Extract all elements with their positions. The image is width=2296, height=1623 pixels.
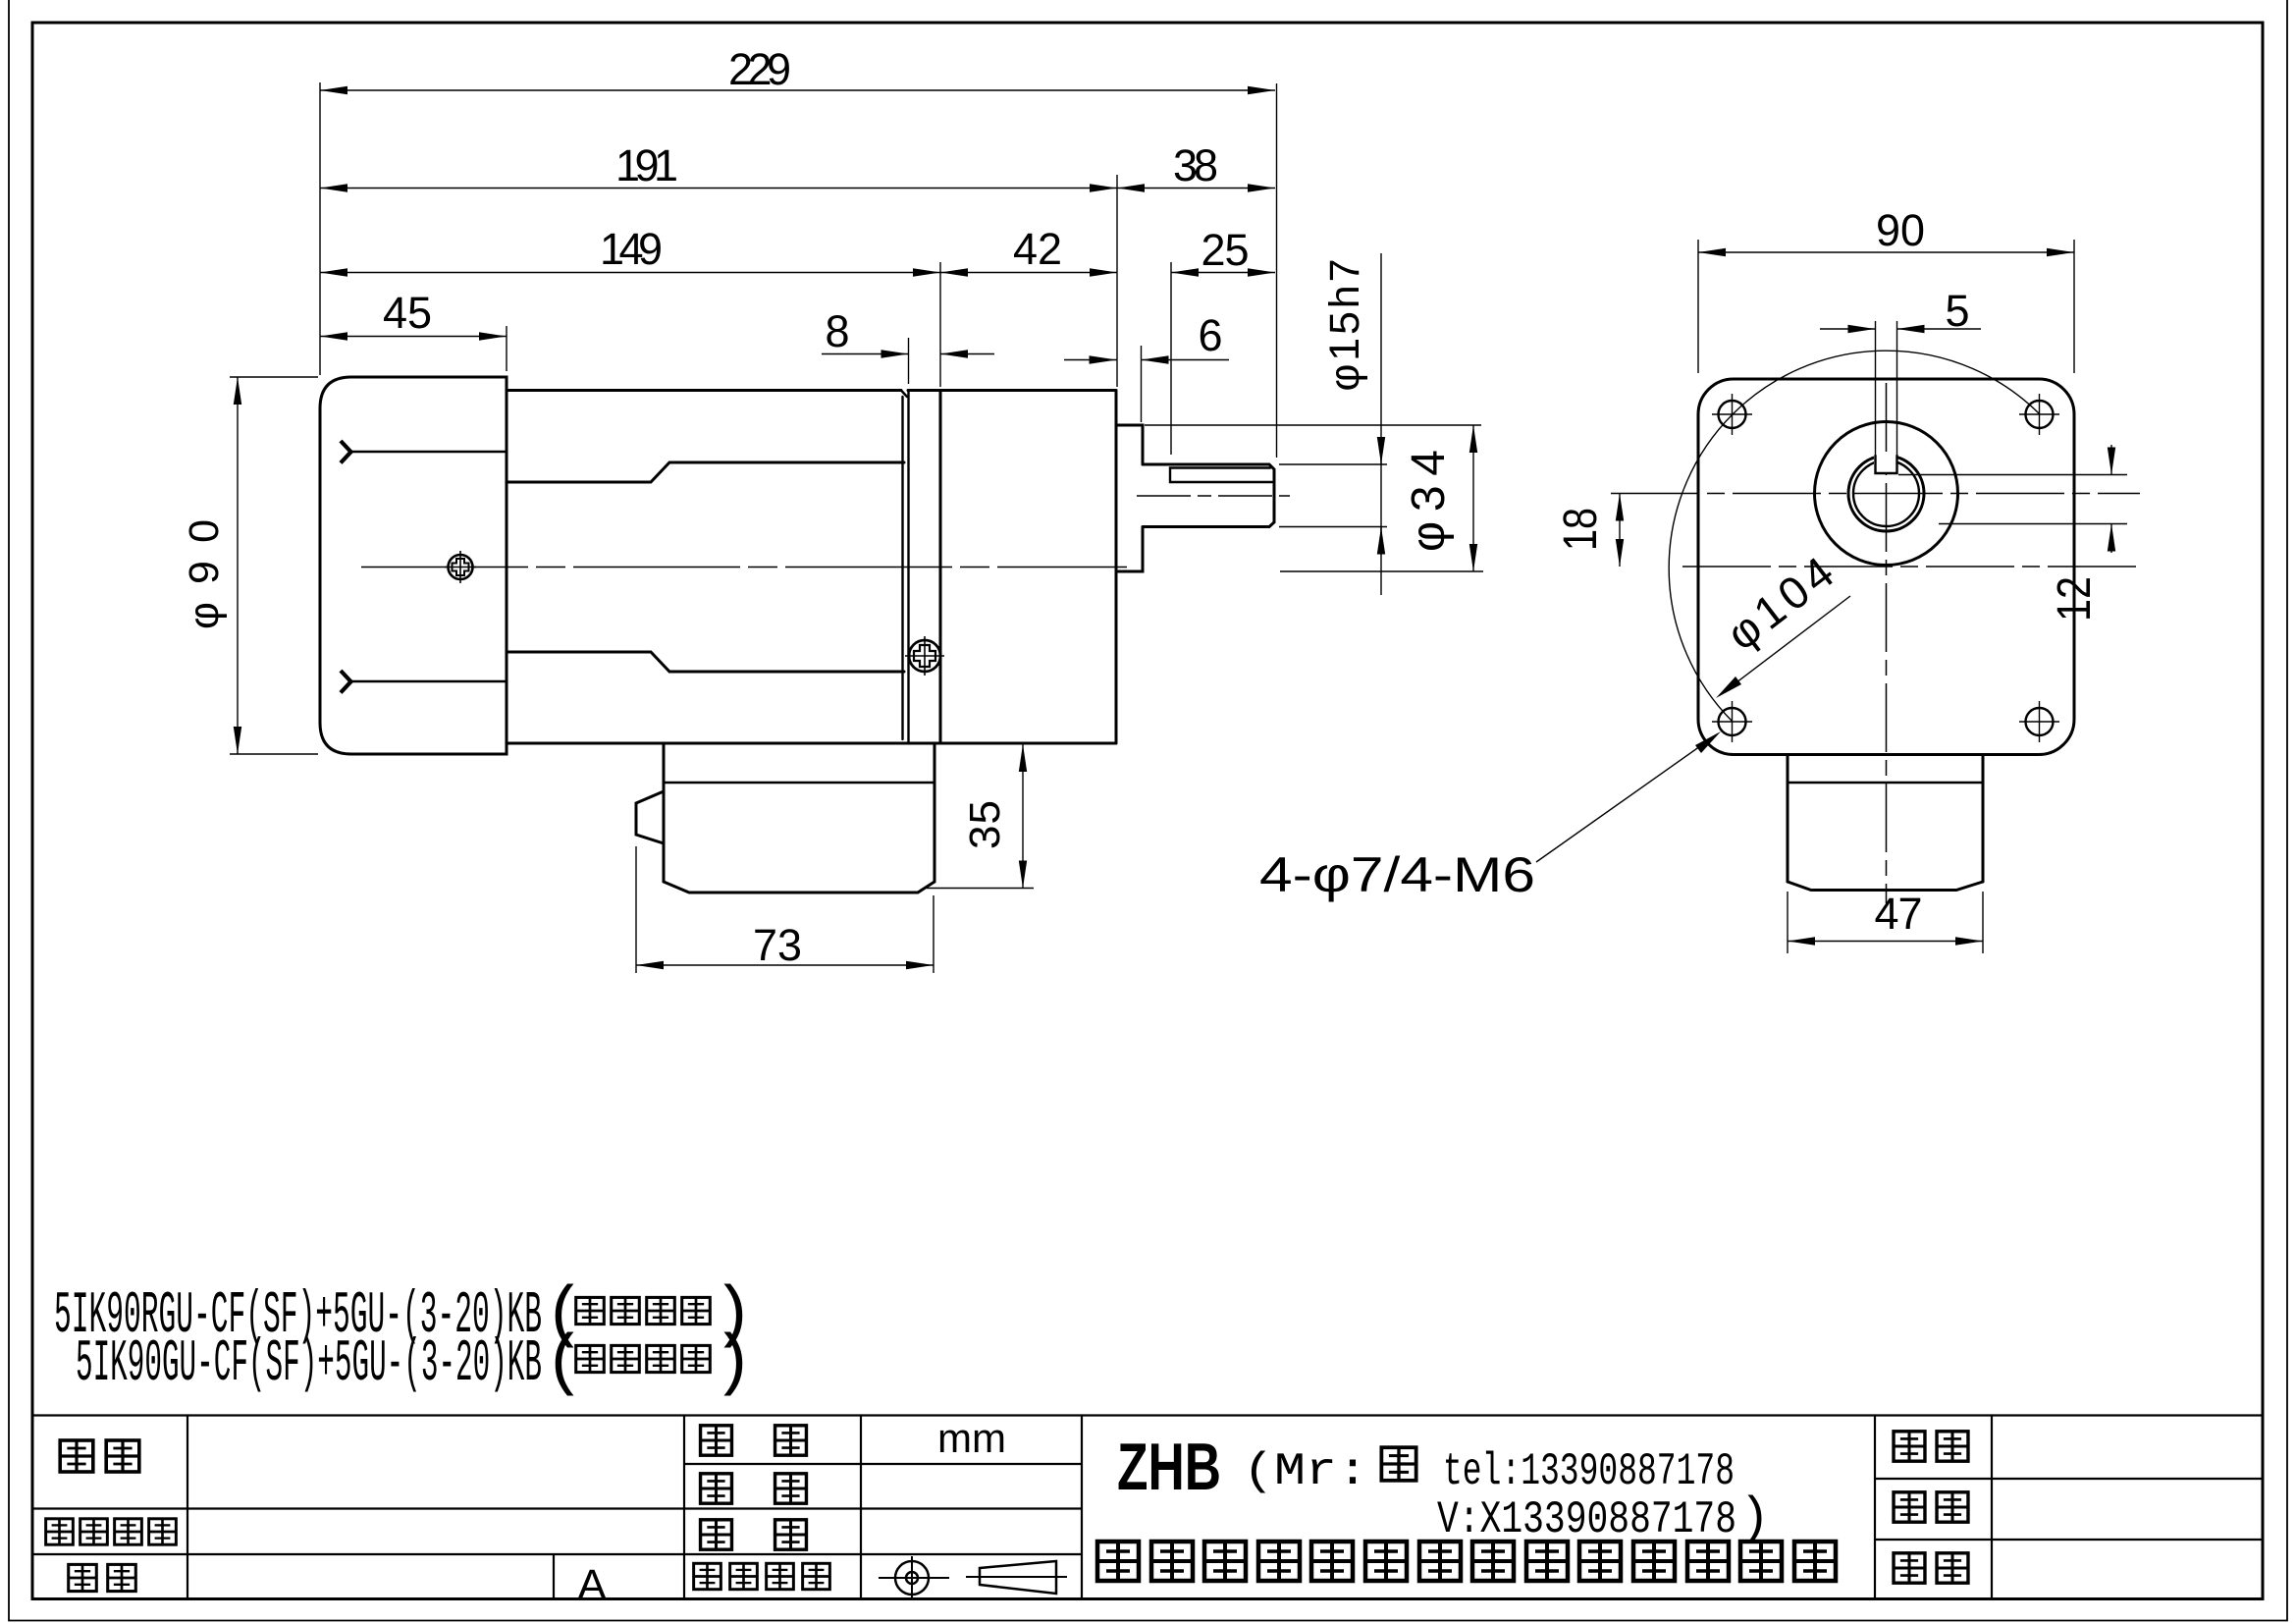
svg-text:φ34: φ34	[1403, 450, 1455, 552]
svg-text:12: 12	[2049, 576, 2101, 622]
svg-text:φ15h7: φ15h7	[1321, 259, 1368, 392]
svg-text:42: 42	[1013, 224, 1062, 274]
svg-text:229: 229	[728, 44, 791, 94]
svg-text:149: 149	[600, 224, 663, 274]
svg-text:18: 18	[1555, 508, 1607, 551]
svg-text:): )	[1739, 1489, 1770, 1547]
svg-text:47: 47	[1875, 889, 1923, 939]
svg-text:mm: mm	[937, 1415, 1006, 1461]
svg-text:): )	[713, 1325, 754, 1403]
svg-text:tel:13390887178: tel:13390887178	[1443, 1446, 1735, 1497]
svg-text:ZHB: ZHB	[1117, 1430, 1221, 1504]
svg-text:6: 6	[1198, 310, 1222, 360]
svg-text:45: 45	[383, 288, 432, 338]
svg-text:5IK90GU-CF(SF)+5GU-(3-20)KB: 5IK90GU-CF(SF)+5GU-(3-20)KB	[76, 1331, 542, 1398]
svg-text:38: 38	[1173, 140, 1218, 190]
svg-text:φ90: φ90	[181, 519, 228, 629]
svg-text:8: 8	[825, 306, 849, 356]
svg-text:V:X13390887178: V:X13390887178	[1437, 1494, 1736, 1545]
svg-text:(: (	[544, 1325, 585, 1403]
svg-text:73: 73	[753, 920, 802, 970]
svg-text:A: A	[577, 1561, 607, 1609]
svg-text:25: 25	[1201, 225, 1250, 275]
svg-text:90: 90	[1876, 205, 1925, 255]
svg-text:(Mr:: (Mr:	[1243, 1446, 1368, 1497]
svg-text:5: 5	[1945, 286, 1969, 336]
svg-text:35: 35	[961, 800, 1009, 849]
svg-text:191: 191	[615, 140, 678, 190]
svg-text:4-φ7/4-M6: 4-φ7/4-M6	[1259, 847, 1535, 902]
